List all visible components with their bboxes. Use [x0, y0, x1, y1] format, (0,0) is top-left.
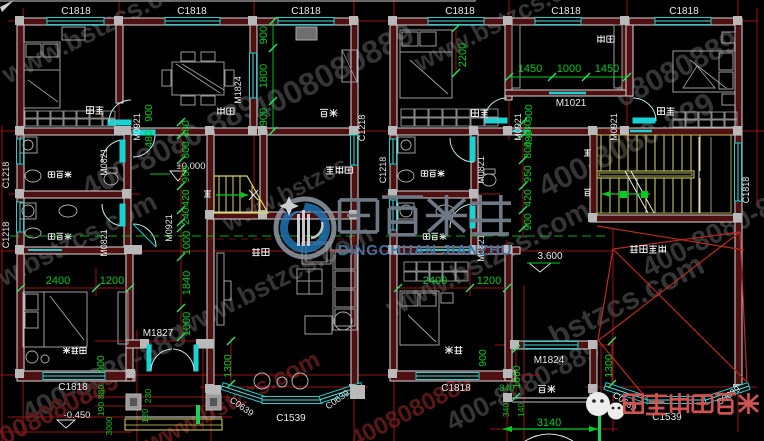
svg-text:1000: 1000	[181, 312, 193, 336]
svg-text:1200: 1200	[100, 275, 124, 287]
svg-text:C1818: C1818	[551, 6, 581, 17]
svg-text:M1824: M1824	[233, 76, 243, 104]
svg-text:900: 900	[523, 104, 535, 122]
svg-text:C1218: C1218	[378, 157, 388, 184]
svg-text:M1824: M1824	[534, 355, 565, 366]
svg-text:C1218: C1218	[1, 162, 11, 189]
svg-text:3140: 3140	[537, 417, 561, 429]
svg-text:900: 900	[143, 104, 155, 122]
svg-text:M0921: M0921	[609, 113, 619, 141]
svg-text:140: 140	[516, 403, 526, 417]
svg-text:1200: 1200	[477, 275, 501, 287]
svg-text:2200: 2200	[457, 43, 469, 67]
svg-text:1450: 1450	[518, 63, 542, 75]
svg-text:900: 900	[522, 213, 534, 231]
svg-text:230: 230	[143, 389, 153, 403]
svg-text:3000: 3000	[104, 416, 114, 435]
svg-text:950: 950	[180, 165, 192, 183]
svg-text:DINGCHUAN JIANZHU: DINGCHUAN JIANZHU	[338, 242, 512, 259]
svg-text:900: 900	[258, 26, 270, 44]
svg-text:1000: 1000	[181, 231, 193, 255]
svg-text:420: 420	[522, 189, 534, 207]
svg-text:1300: 1300	[222, 354, 234, 378]
svg-text:2400: 2400	[423, 275, 447, 287]
svg-text:120: 120	[140, 409, 150, 423]
svg-text:240: 240	[180, 207, 192, 225]
svg-text:C1818: C1818	[58, 382, 88, 393]
svg-text:M0921: M0921	[164, 214, 174, 242]
svg-text:880: 880	[96, 385, 106, 399]
svg-text:190: 190	[96, 402, 106, 416]
svg-text:C1818: C1818	[441, 383, 471, 394]
svg-text:C1218: C1218	[357, 115, 367, 142]
svg-text:C1818: C1818	[669, 6, 699, 17]
svg-text:340: 340	[499, 383, 514, 393]
svg-text:C1818: C1818	[291, 6, 321, 17]
svg-text:420: 420	[180, 189, 192, 207]
svg-text:C1818: C1818	[445, 6, 475, 17]
svg-text:900: 900	[258, 108, 270, 126]
svg-text:1300: 1300	[603, 354, 615, 378]
svg-text:C1818: C1818	[61, 6, 91, 17]
svg-text:M0821: M0821	[476, 156, 486, 184]
svg-text:M0821: M0821	[99, 229, 109, 257]
svg-text:900: 900	[95, 355, 107, 373]
svg-text:340: 340	[501, 403, 511, 417]
svg-text:800: 800	[180, 141, 192, 159]
svg-text:M1021: M1021	[556, 98, 587, 109]
svg-text:1800: 1800	[258, 64, 270, 88]
svg-text:480: 480	[522, 120, 534, 138]
svg-text:M1827: M1827	[143, 328, 174, 339]
svg-text:C1818: C1818	[177, 6, 207, 17]
svg-text:2400: 2400	[46, 275, 70, 287]
svg-text:3.600: 3.600	[537, 251, 562, 262]
svg-text:1000: 1000	[557, 63, 581, 75]
svg-text:480: 480	[143, 130, 155, 148]
svg-text:1840: 1840	[181, 271, 193, 295]
svg-text:M0821: M0821	[99, 148, 109, 176]
svg-text:M0921: M0921	[132, 113, 142, 141]
svg-text:C1218: C1218	[1, 222, 11, 249]
svg-text:900: 900	[477, 349, 489, 367]
svg-text:C1539: C1539	[276, 413, 306, 424]
svg-text:950: 950	[522, 165, 534, 183]
svg-text:1450: 1450	[595, 63, 619, 75]
svg-text:-0.450: -0.450	[64, 410, 91, 421]
svg-text:800: 800	[522, 141, 534, 159]
svg-text:480: 480	[180, 120, 192, 138]
svg-text:C1818: C1818	[741, 177, 751, 204]
